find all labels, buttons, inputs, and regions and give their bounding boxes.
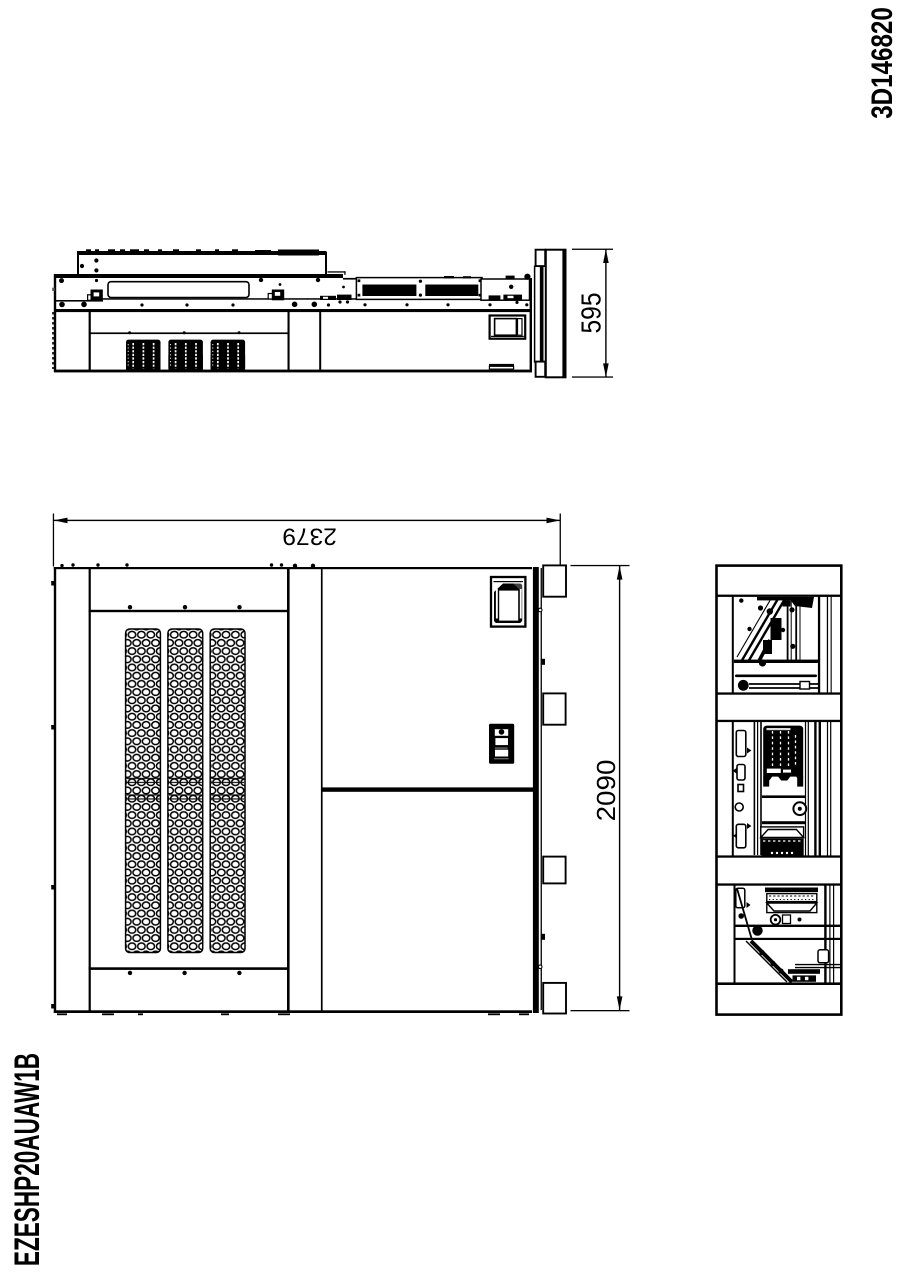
svg-text:595: 595 [575, 292, 607, 333]
svg-text:EZESHP20AUAW1B: EZESHP20AUAW1B [8, 1053, 47, 1266]
svg-text:2379: 2379 [282, 522, 337, 549]
svg-text:2090: 2090 [592, 760, 621, 822]
svg-text:3D146820: 3D146820 [866, 7, 899, 119]
